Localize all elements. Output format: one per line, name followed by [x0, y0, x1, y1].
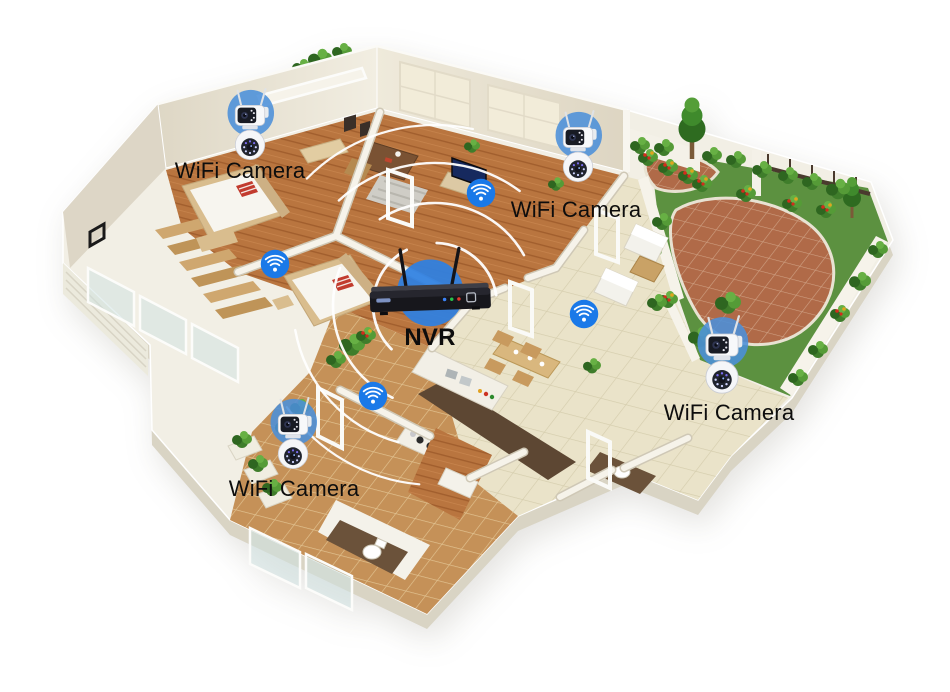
smart-home-diagram: WiFi Camera WiFi Camera WiFi Camera WiFi… — [0, 0, 950, 692]
house-floorplan-illustration — [0, 0, 950, 692]
